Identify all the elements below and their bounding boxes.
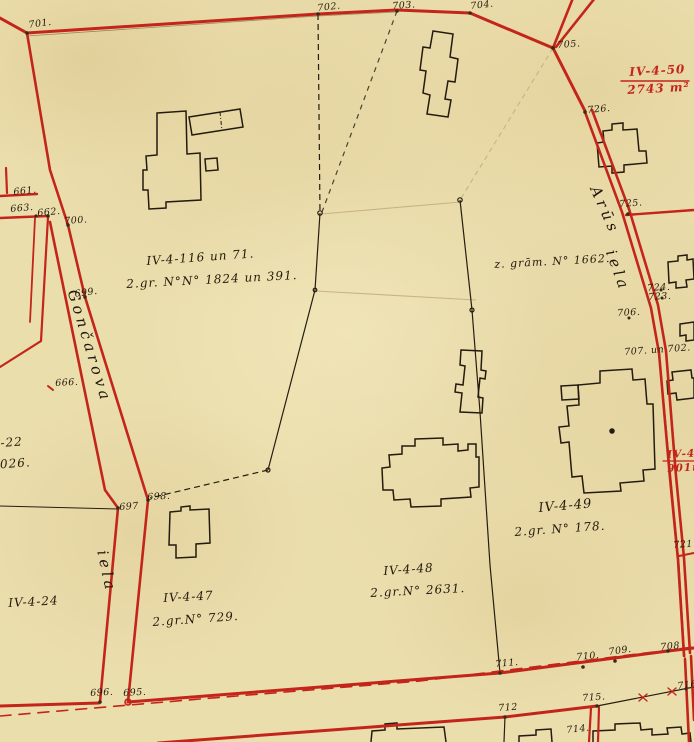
- red-label-901m-partial: 901m: [667, 462, 694, 474]
- parcel-label-iv-4-48: IV-4-48: [383, 561, 434, 576]
- survey-point-698: 698.: [147, 492, 171, 503]
- survey-point-704: 704.: [470, 0, 494, 11]
- survey-point-705: 705.: [557, 39, 581, 50]
- parcel-label-3026-partial: 3026.: [0, 456, 31, 471]
- survey-point-708: 708: [660, 641, 680, 652]
- survey-point-706: 706.: [617, 308, 641, 319]
- parcel-label-iv-4-47: IV-4-47: [163, 589, 214, 604]
- red-label-2743-m2: 2743 m²: [627, 81, 690, 96]
- survey-point-725: 725.: [619, 198, 643, 209]
- survey-point-662: 662.: [37, 207, 61, 218]
- survey-point-695: 695.: [123, 688, 147, 699]
- parcel-label-22-partial: -22: [0, 435, 23, 449]
- building-footprints: [143, 31, 694, 742]
- parcel-label-iv-4-24: IV-4-24: [8, 594, 59, 609]
- survey-point-726: 726.: [587, 104, 611, 115]
- survey-point-697: 697: [119, 502, 139, 513]
- survey-point-715: 715.: [582, 692, 606, 703]
- map-canvas: 701.702.703.704.705.726.725.724.723.706.…: [0, 0, 694, 742]
- survey-point-696: 696.: [90, 688, 114, 699]
- survey-point-661: 661.: [13, 186, 37, 198]
- survey-point-711: 711.: [495, 658, 519, 669]
- survey-point-710: 710.: [576, 651, 600, 662]
- survey-point-712: 712: [498, 703, 518, 714]
- survey-point-702: 702.: [317, 2, 341, 14]
- survey-point-703: 703.: [392, 0, 416, 11]
- survey-point-714: 714.: [566, 724, 590, 736]
- survey-point-716: 716.: [677, 680, 694, 692]
- survey-point-663: 663.: [10, 203, 34, 214]
- survey-point-666: 666.: [55, 378, 79, 389]
- survey-point-721: 721.: [673, 539, 694, 550]
- survey-point-723: 723.: [648, 292, 672, 303]
- red-label-iv-4-50: IV-4-50: [629, 63, 686, 78]
- red-label-iv-4-partial: IV-4-: [667, 448, 694, 460]
- survey-point-700: 700.: [64, 215, 88, 226]
